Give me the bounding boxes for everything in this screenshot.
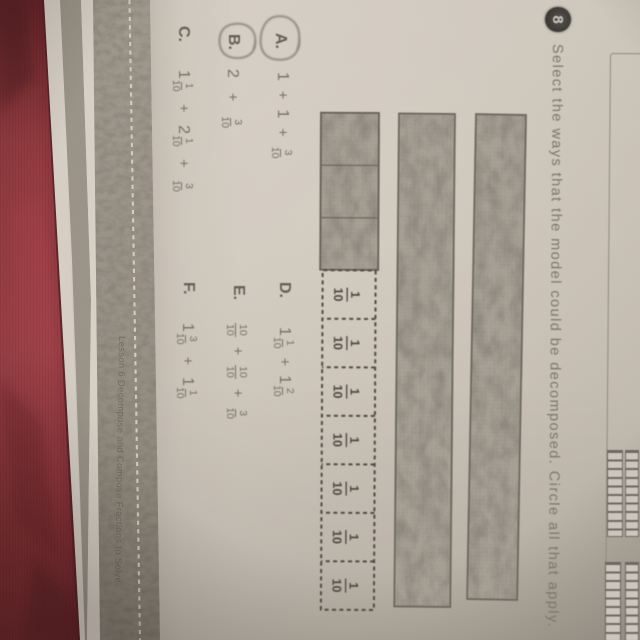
svg-text:10: 10 (331, 288, 345, 302)
svg-text:1: 1 (348, 291, 362, 298)
